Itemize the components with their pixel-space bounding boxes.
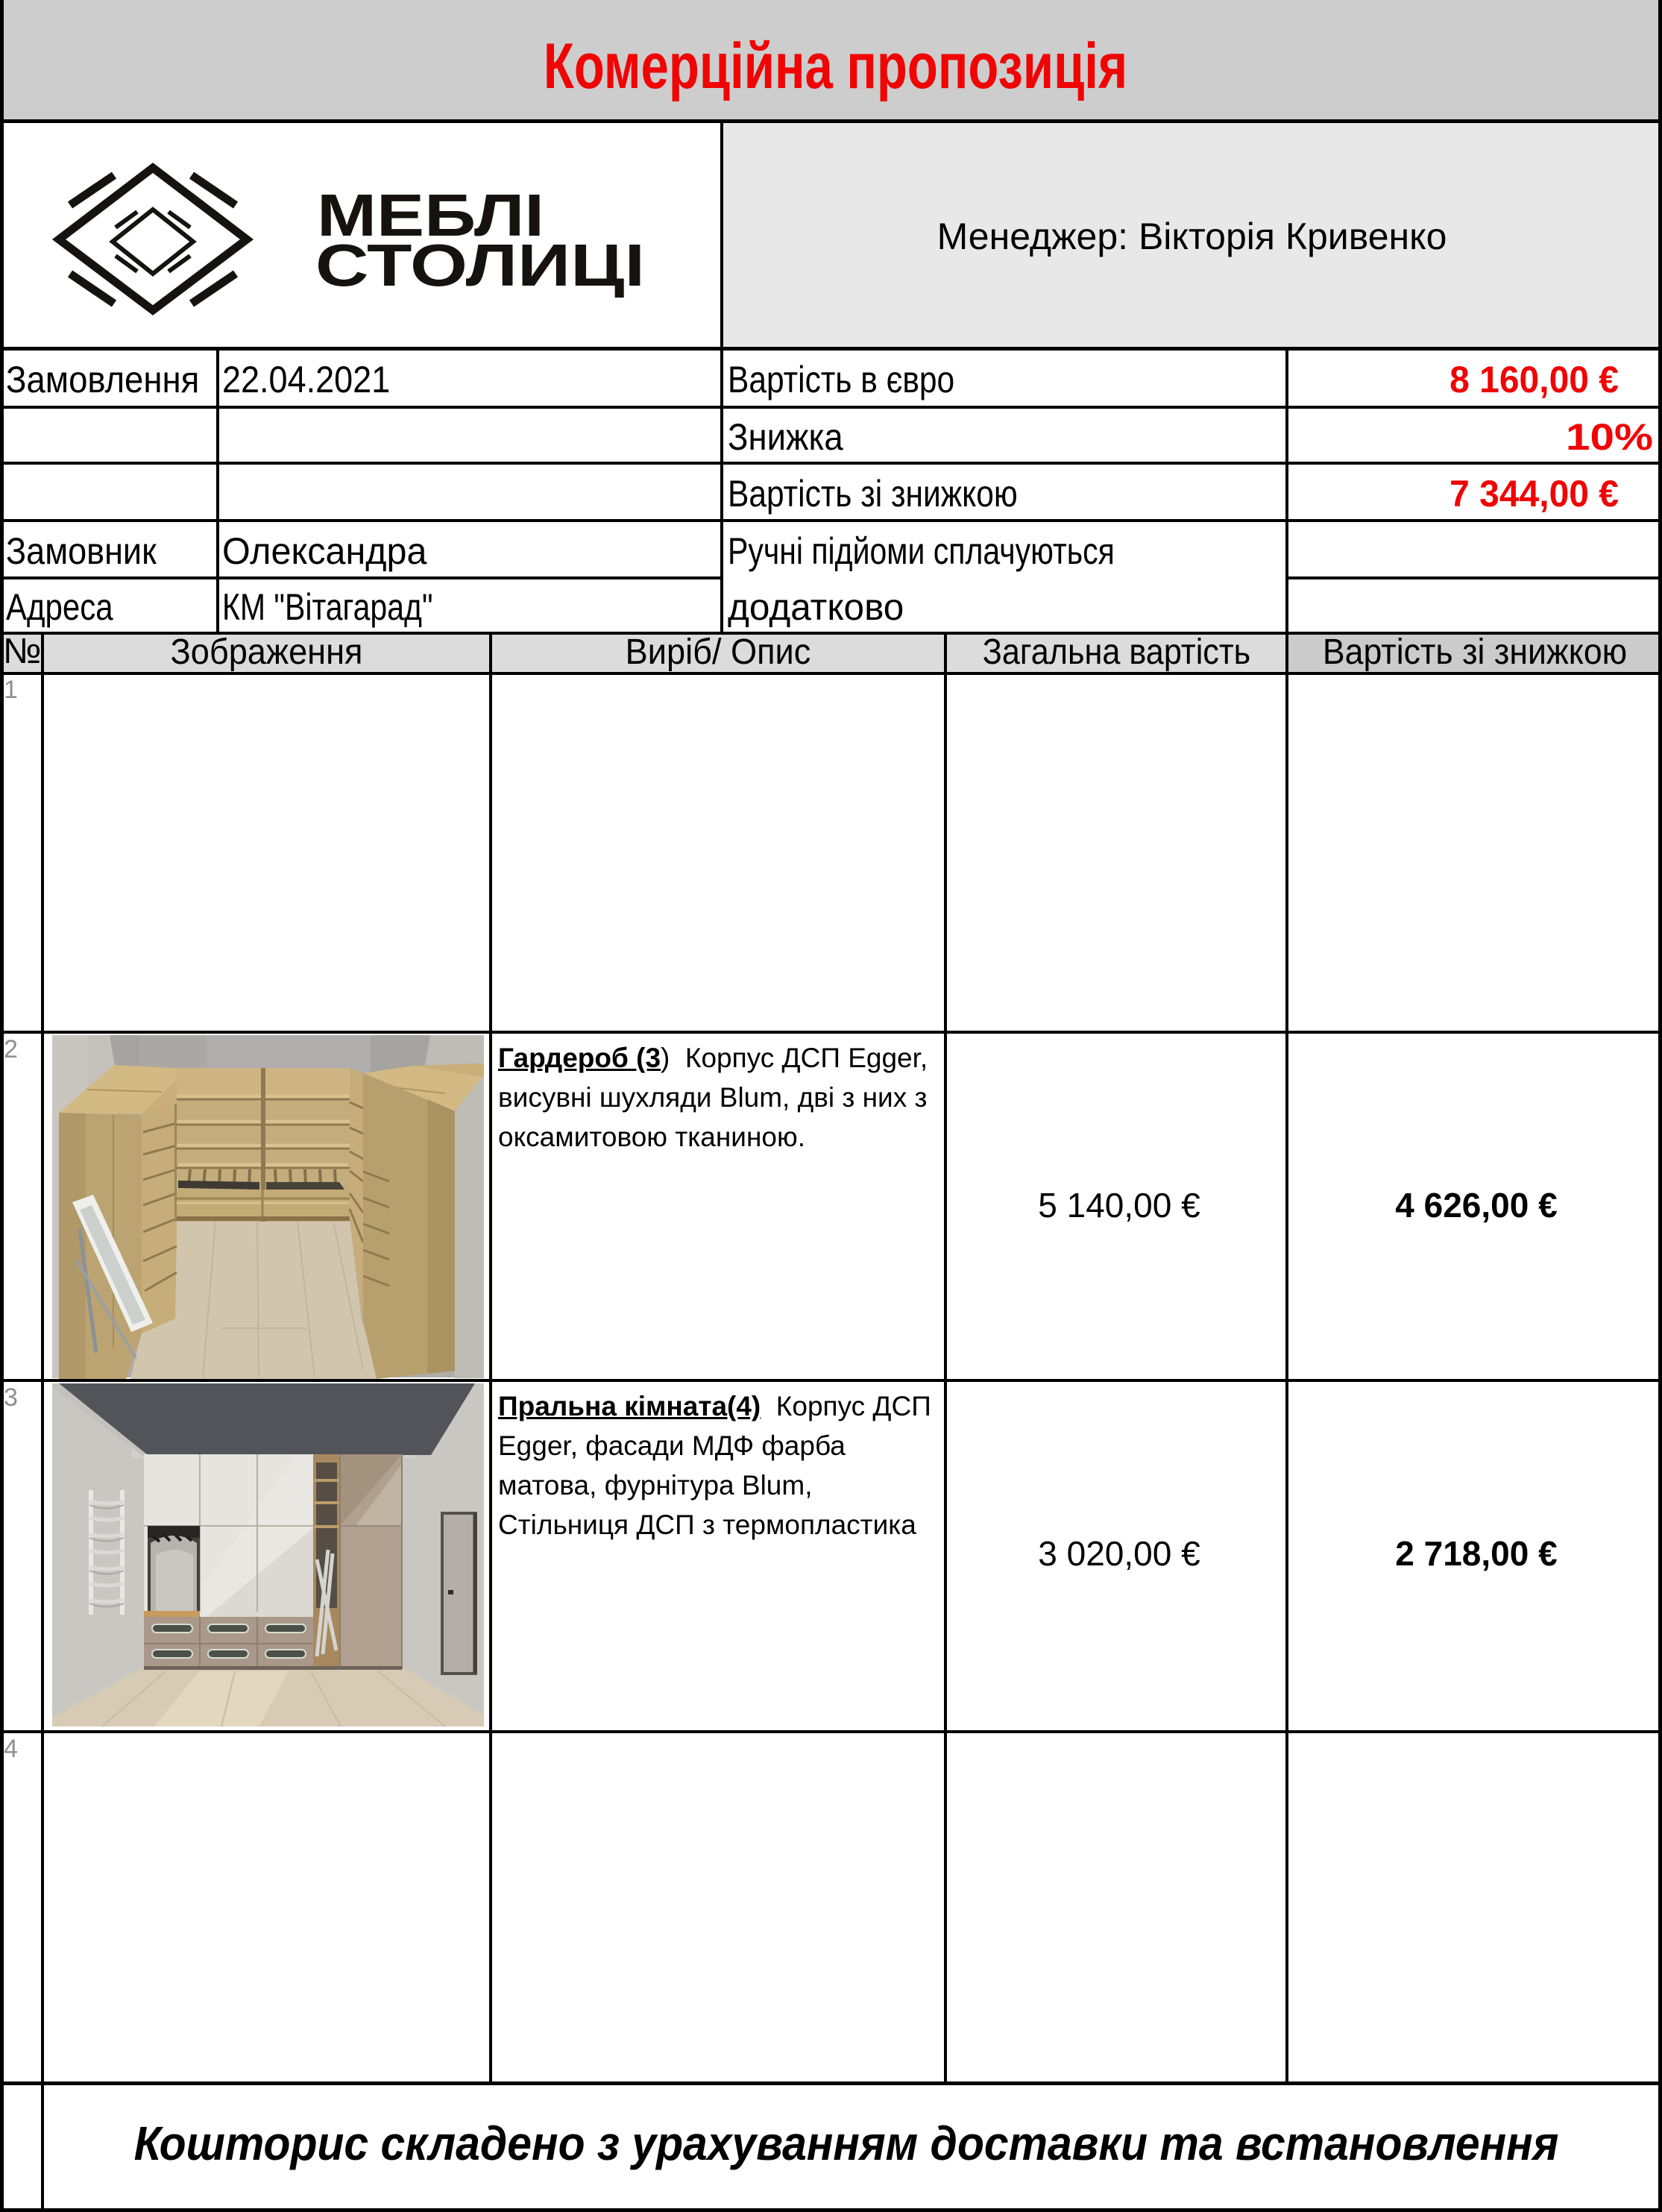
svg-text:СТОЛИЦІ: СТОЛИЦІ xyxy=(315,232,645,298)
